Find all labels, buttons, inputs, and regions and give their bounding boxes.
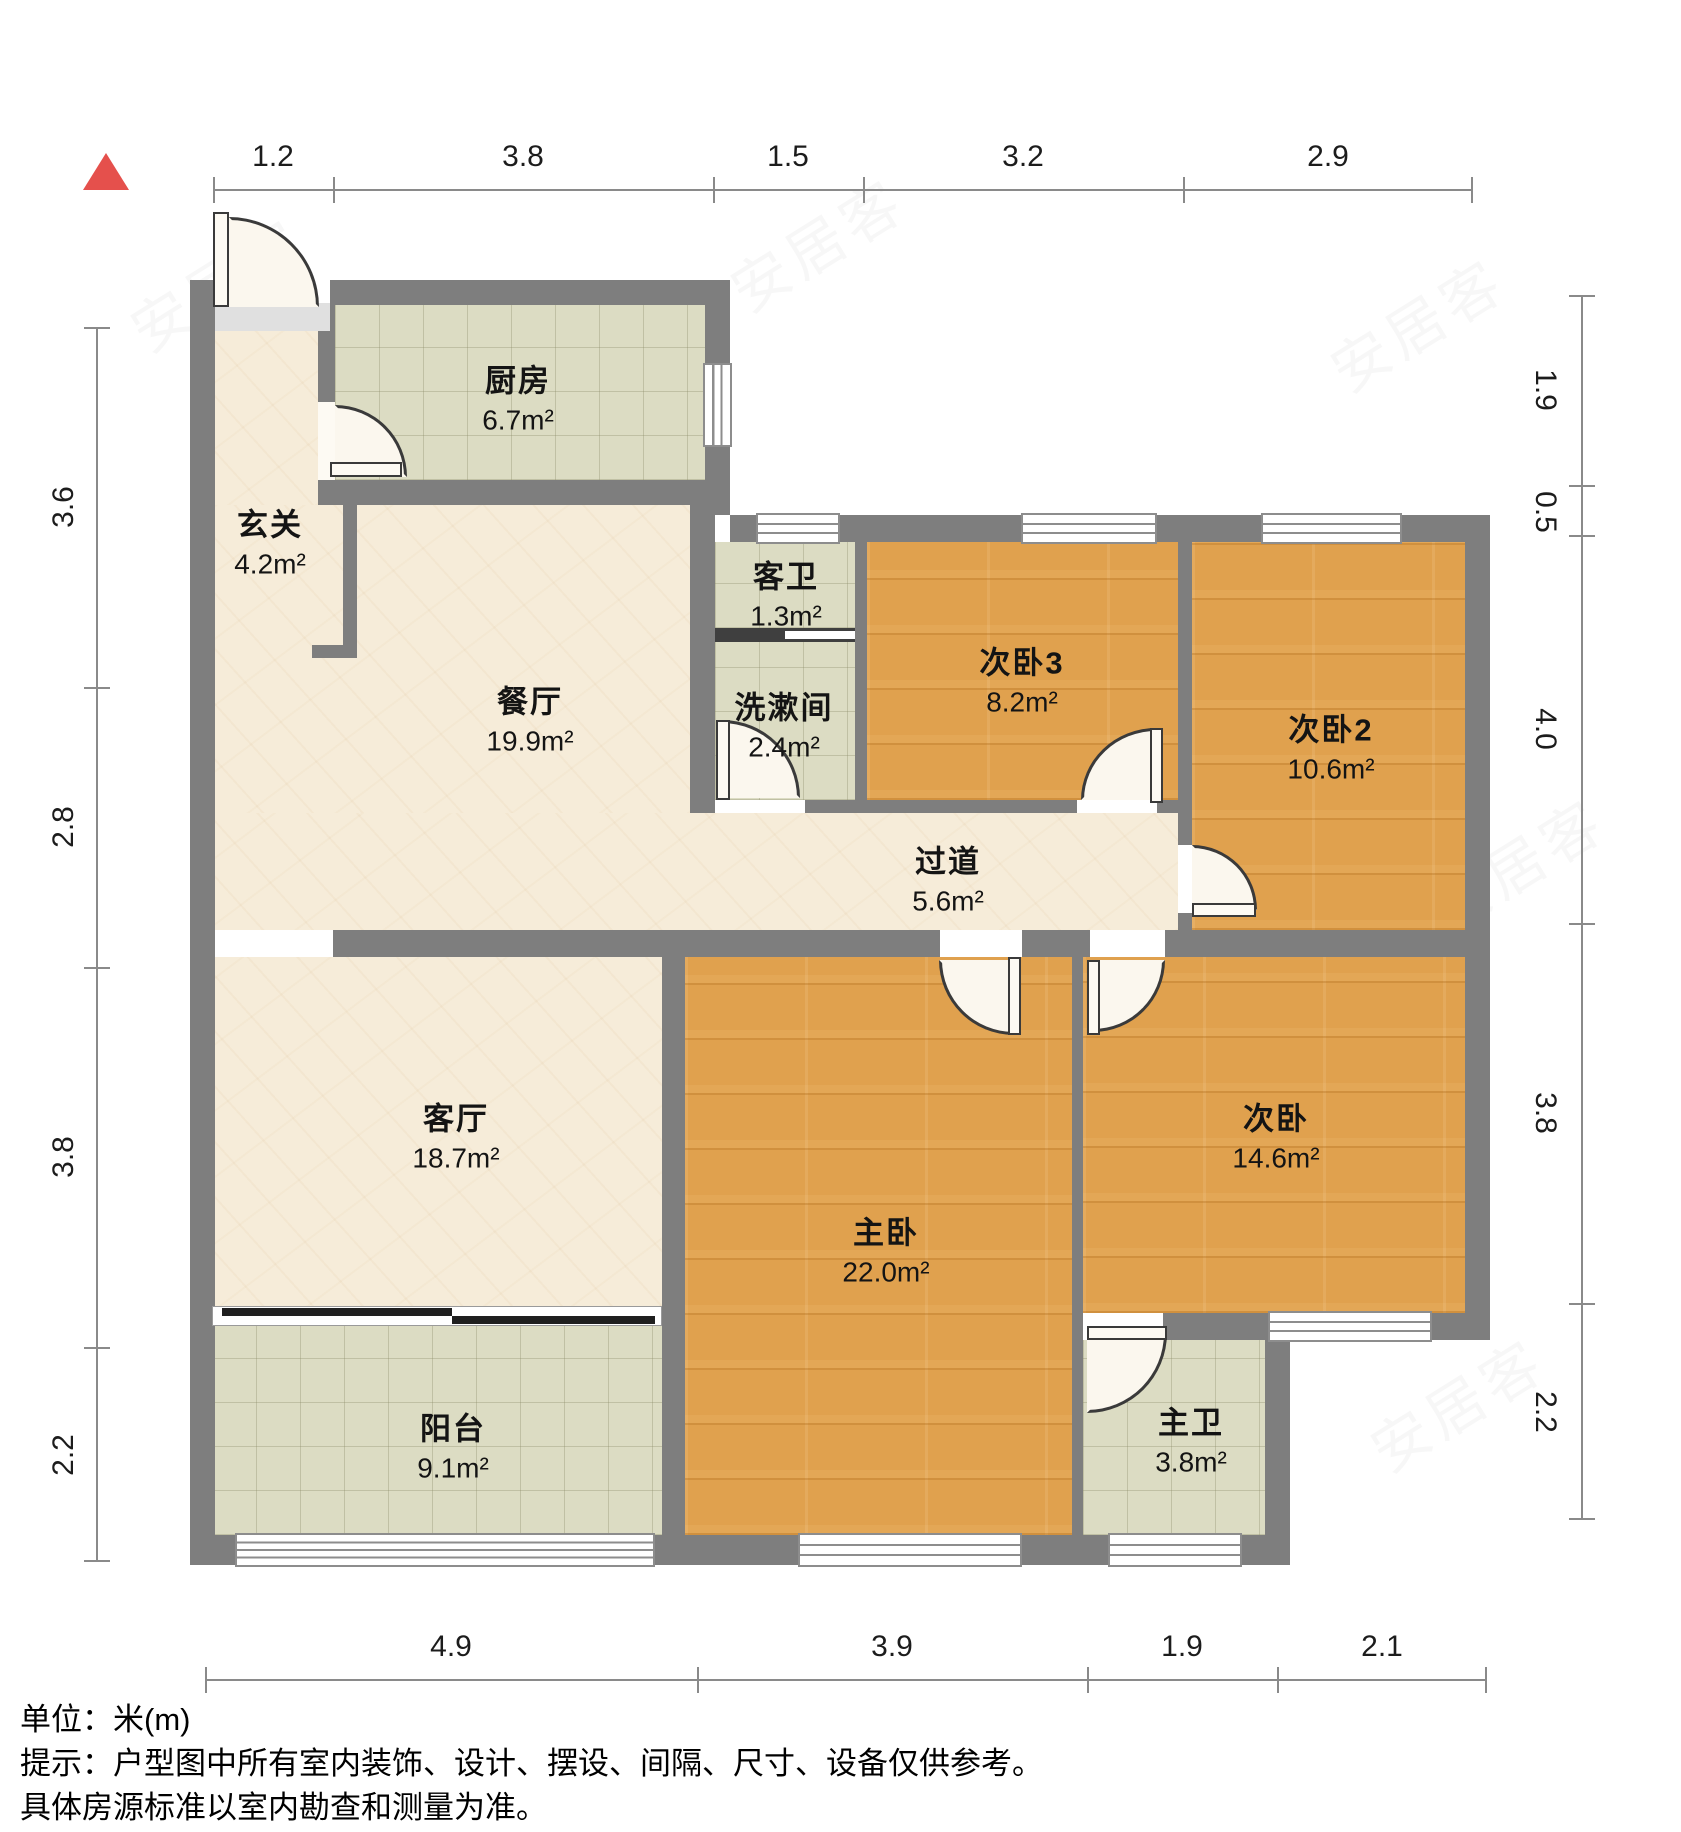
room-name: 次卧2 [1287,705,1374,750]
wall-outer-left [190,280,215,1565]
room-area: 1.3m² [750,601,822,633]
room-area: 8.2m² [979,687,1064,719]
room-label-guest-bath: 客卫 1.3m² [750,552,822,633]
wall-outer-right [1465,515,1490,1340]
room-name: 厨房 [482,356,554,401]
footer-tip-line2: 具体房源标准以室内勘查和测量为准。 [20,1782,547,1827]
room-name: 客厅 [412,1094,499,1139]
dim-left-3: 3.8 [47,1136,81,1178]
dim-bottom-4: 2.1 [1361,1630,1403,1664]
dim-bottom-1: 4.9 [430,1630,472,1664]
room-label-living-room: 客厅 18.7m² [412,1094,499,1175]
balcony-slider-panel-1 [222,1308,452,1316]
room-label-dining-room: 餐厅 19.9m² [486,677,573,758]
room-area: 14.6m² [1232,1143,1319,1175]
dim-left-2: 2.8 [47,806,81,848]
room-label-wash-room: 洗漱间 2.4m² [735,683,834,764]
wall-masterbath-right [1265,1340,1290,1565]
wall-entry-stub-vertical [343,505,357,648]
dimension-line-bottom [205,1679,1487,1681]
window-master-bedroom [798,1533,1022,1567]
dim-top-1: 1.2 [252,140,294,174]
wall-corridor-bottom-a [333,930,940,957]
room-label-master-bath: 主卫 3.8m² [1155,1398,1227,1479]
north-indicator-icon [83,153,129,190]
wall-bedroom2-left-lower [1178,913,1192,930]
dim-right-5: 2.2 [1528,1391,1562,1433]
master-bath-door-leaf [1087,1326,1167,1340]
dim-right-3: 4.0 [1528,708,1562,750]
dim-top-3: 1.5 [767,140,809,174]
room-area: 5.6m² [912,886,984,918]
wall-kitchen-bottom [318,480,730,505]
wall-masterbedroom-right [1072,957,1083,1565]
floor-corridor [212,813,1178,930]
window-guest-bath [756,513,840,544]
footer-tip-line1: 提示：户型图中所有室内装饰、设计、摆设、间隔、尺寸、设备仅供参考。 [20,1738,1043,1783]
wall-washroom-left [690,505,715,813]
balcony-slider-panel-2 [452,1316,655,1324]
dim-right-1: 1.9 [1528,369,1562,411]
room-label-kitchen: 厨房 6.7m² [482,356,554,437]
room-name: 次卧 [1232,1094,1319,1139]
floor-entry-hall [212,305,318,505]
dim-right-2: 0.5 [1528,491,1562,533]
dim-bottom-2: 3.9 [871,1630,913,1664]
footer-unit-label: 单位：米(m) [20,1694,190,1739]
window-bedroom [1268,1311,1432,1342]
bedroom-door-leaf [1087,960,1100,1035]
watermark: 安居客 [1312,236,1519,409]
dim-top-4: 3.2 [1002,140,1044,174]
room-name: 餐厅 [486,677,573,722]
wall-masterbedroom-left [662,957,685,1565]
room-label-master-bedroom: 主卧 22.0m² [842,1208,929,1289]
window-master-bath [1108,1533,1242,1567]
floorplan-canvas: 安居客 安居客 安居客 安居客 安居客 安居客 安居客 安居客 安居客 [0,0,1681,1832]
room-name: 主卧 [842,1208,929,1253]
entry-threshold [215,303,330,331]
dimension-line-right [1581,295,1583,1520]
wall-corridor-bottom-c [1165,930,1490,957]
dim-right-4: 3.8 [1528,1092,1562,1134]
room-area: 2.4m² [735,732,834,764]
room-name: 过道 [912,837,984,882]
room-name: 玄关 [234,500,306,545]
room-area: 19.9m² [486,726,573,758]
room-name: 主卫 [1155,1398,1227,1443]
washroom-door-leaf [716,720,730,800]
room-area: 9.1m² [417,1453,489,1485]
room-label-bedroom: 次卧 14.6m² [1232,1094,1319,1175]
watermark: 安居客 [712,156,919,329]
room-name: 洗漱间 [735,683,834,728]
dim-top-5: 2.9 [1307,140,1349,174]
room-label-bedroom2: 次卧2 10.6m² [1287,705,1374,786]
room-area: 3.8m² [1155,1447,1227,1479]
master-bedroom-door-leaf [1008,957,1021,1035]
room-label-corridor: 过道 5.6m² [912,837,984,918]
wall-bedroom2-left-upper [1178,538,1192,845]
wall-corridor-top-a [805,800,1077,813]
wall-top-kitchen [330,280,730,305]
bedroom3-door-leaf [1150,728,1163,803]
entry-door-leaf [213,212,229,307]
room-name: 次卧3 [979,638,1064,683]
room-area: 4.2m² [234,549,306,581]
room-label-entry-hall: 玄关 4.2m² [234,500,306,581]
kitchen-door-leaf [330,462,402,477]
window-kitchen [703,363,732,447]
dim-left-4: 2.2 [47,1434,81,1476]
dim-bottom-3: 1.9 [1161,1630,1203,1664]
room-label-bedroom3: 次卧3 8.2m² [979,638,1064,719]
dim-left-1: 3.6 [47,486,81,528]
room-area: 10.6m² [1287,754,1374,786]
room-name: 客卫 [750,552,822,597]
wall-corridor-bottom-b [1022,930,1090,957]
wall-guestbath-right [855,542,867,813]
window-balcony [235,1533,655,1567]
room-area: 6.7m² [482,405,554,437]
window-bedroom2 [1261,513,1402,544]
entry-door-arc [229,217,319,307]
bedroom2-door-leaf [1192,903,1256,917]
dim-top-2: 3.8 [502,140,544,174]
room-area: 22.0m² [842,1257,929,1289]
wall-entry-stub-foot [312,645,357,658]
dimension-line-top [213,189,1473,191]
room-label-balcony: 阳台 9.1m² [417,1404,489,1485]
room-area: 18.7m² [412,1143,499,1175]
dimension-line-left [96,327,98,1562]
room-name: 阳台 [417,1404,489,1449]
window-bedroom3 [1021,513,1157,544]
